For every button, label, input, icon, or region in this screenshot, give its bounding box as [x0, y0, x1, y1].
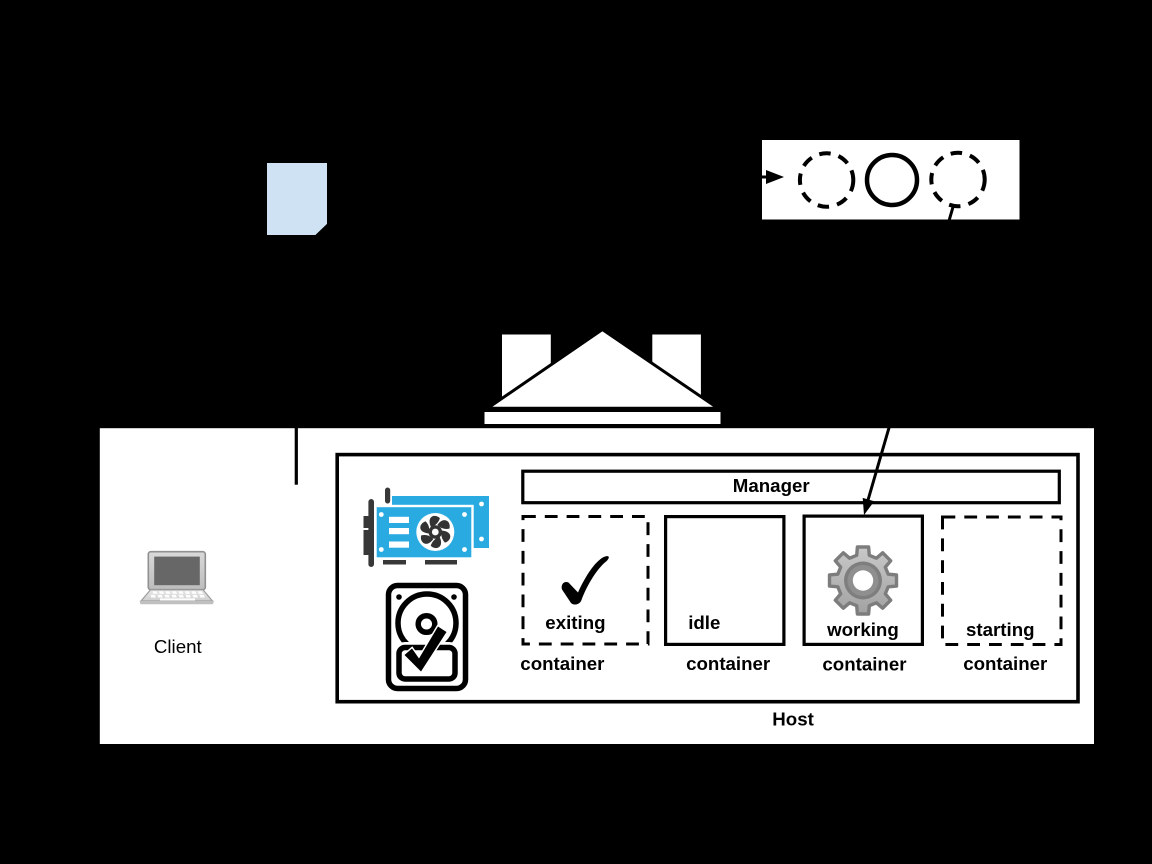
- svg-text:idle: idle: [688, 612, 720, 633]
- svg-text:container: container: [520, 653, 604, 674]
- svg-text:container: container: [686, 653, 770, 674]
- svg-text:Client: Client: [154, 636, 203, 657]
- svg-text:Manager: Manager: [733, 475, 810, 496]
- svg-text:Host: Host: [772, 709, 814, 730]
- svg-text:container: container: [822, 653, 906, 674]
- svg-text:exiting: exiting: [545, 612, 605, 633]
- svg-text:container: container: [963, 653, 1047, 674]
- svg-text:starting: starting: [966, 619, 1035, 640]
- svg-text:working: working: [826, 619, 899, 640]
